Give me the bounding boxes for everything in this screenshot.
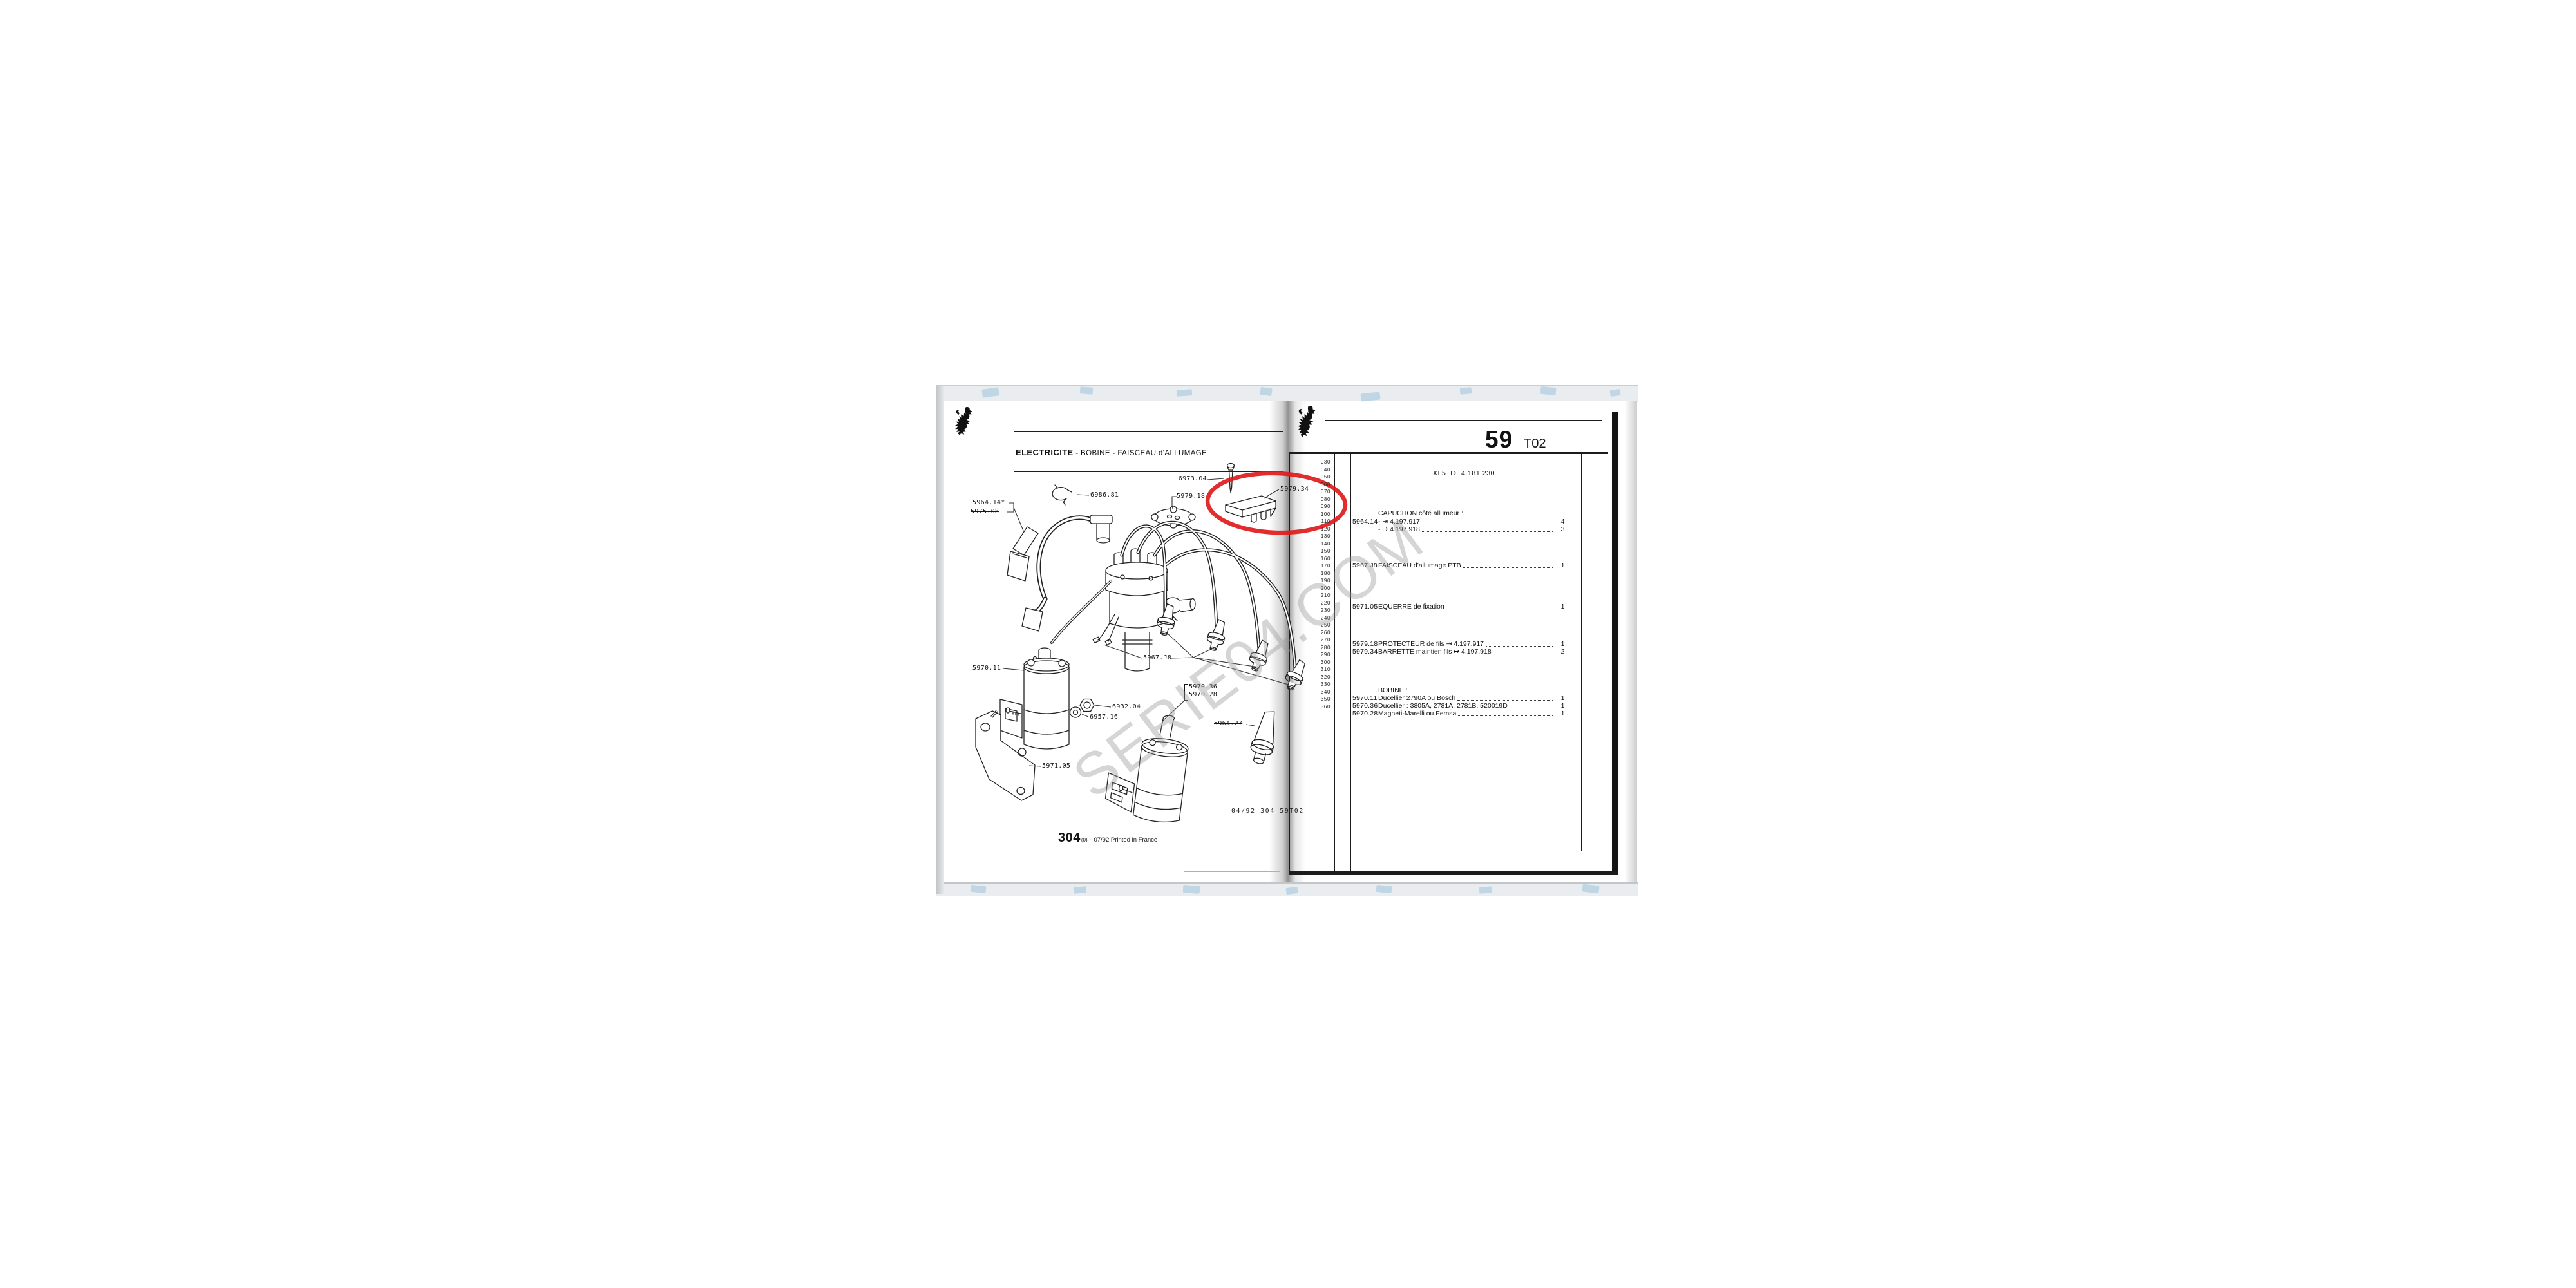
applicability-ref: 4.181.230	[1461, 469, 1495, 477]
dotted-leader	[1422, 531, 1553, 532]
margin-number: 060	[1314, 481, 1333, 489]
applicability-model: XL5	[1433, 469, 1446, 477]
part-label-5964-14: 5964.14*	[972, 499, 1005, 506]
dotted-leader	[1458, 715, 1553, 716]
margin-number: 360	[1314, 703, 1333, 711]
dotted-leader	[1422, 524, 1553, 524]
boot-5964-14-drawing	[1007, 527, 1038, 581]
margin-number: 140	[1314, 540, 1333, 548]
peugeot-lion-icon	[1298, 406, 1315, 437]
qty-value: 1	[1557, 694, 1569, 702]
margin-number: 110	[1314, 518, 1333, 526]
footer-print-note: - 07/92 Printed in France	[1090, 837, 1158, 844]
left-page-title: ELECTRICITE - BOBINE - FAISCEAU d'ALLUMA…	[1016, 448, 1207, 457]
margin-number: 080	[1314, 496, 1333, 504]
margin-number: 070	[1314, 488, 1333, 496]
part-label-5967-J8: 5967.J8	[1143, 654, 1171, 661]
margin-number: 300	[1314, 659, 1333, 667]
title-section: ELECTRICITE	[1016, 448, 1074, 457]
margin-number: 290	[1314, 651, 1333, 659]
screenshot-background: ELECTRICITE - BOBINE - FAISCEAU d'ALLUMA…	[0, 0, 2576, 1288]
margin-number: 130	[1314, 533, 1333, 540]
dotted-leader	[1446, 609, 1553, 609]
table-row: 5970.28Magneti-Marelli ou Femsa	[1352, 710, 1555, 717]
qty-value: 1	[1557, 603, 1569, 611]
page-code: T02	[1524, 437, 1546, 451]
qty-value: 3	[1557, 526, 1569, 533]
margin-number: 330	[1314, 681, 1333, 688]
margin-number: 040	[1314, 466, 1333, 474]
table-row: 5979.34BARRETTE maintien fils ↦ 4.197.91…	[1352, 648, 1555, 656]
qty-value: 1	[1557, 562, 1569, 569]
qty-value: 1	[1557, 702, 1569, 710]
footer-page-number: 304	[1058, 831, 1081, 846]
title-subsection: - BOBINE - FAISCEAU d'ALLUMAGE	[1074, 450, 1207, 457]
qty-value: 1	[1557, 710, 1569, 717]
margin-number: 090	[1314, 503, 1333, 511]
distributor-drawing	[1093, 549, 1195, 671]
part-label-5970-11: 5970.11	[972, 665, 1001, 672]
part-label-5979-18: 5979.18	[1177, 493, 1205, 500]
applicability-note: XL5 ↦ 4.181.230	[1433, 469, 1495, 477]
margin-number: 050	[1314, 473, 1333, 481]
table-row: 5979.18PROTECTEUR de fils ⇥ 4.197.917	[1352, 640, 1555, 648]
margin-number: 310	[1314, 666, 1333, 674]
part-label-6973-04: 6973.04	[1177, 475, 1207, 482]
peugeot-lion-icon	[955, 407, 972, 435]
dotted-leader	[1457, 700, 1553, 701]
table-section-header: BOBINE :	[1352, 687, 1580, 694]
dotted-leader	[1493, 654, 1553, 654]
coil-5970-11-drawing	[1000, 648, 1069, 749]
clip-6986-drawing	[1052, 485, 1072, 505]
table-row: 5970.11Ducellier 2790A ou Bosch	[1352, 694, 1555, 702]
qty-value: 1	[1557, 640, 1569, 648]
margin-number: 100	[1314, 511, 1333, 518]
barrette-5979-drawing	[1226, 496, 1276, 522]
table-row: 5970.36Ducellier : 3805A, 2781A, 2781B, …	[1352, 702, 1555, 710]
qty-value: 4	[1557, 518, 1569, 526]
margin-number: 120	[1314, 526, 1333, 533]
page-number: 59	[1485, 426, 1513, 453]
dotted-leader	[1463, 567, 1553, 568]
scanned-catalog-page: ELECTRICITE - BOBINE - FAISCEAU d'ALLUMA…	[925, 385, 1649, 895]
left-page-footer: 304 (0) - 07/92 Printed in France	[1058, 831, 1157, 846]
part-label-6986-81: 6986.81	[1090, 491, 1119, 498]
plate-reference-code: 04/92 304 59T02	[1231, 808, 1304, 815]
footer-edition: (0)	[1081, 837, 1088, 843]
arrow-from-bar-icon: ↦	[1451, 469, 1457, 477]
margin-number: 030	[1314, 459, 1333, 466]
boot-5964-27-drawing	[1247, 708, 1282, 766]
part-label-5979-34: 5979.34	[1280, 486, 1309, 493]
margin-number: 150	[1314, 547, 1333, 555]
margin-number: 340	[1314, 688, 1333, 696]
qty-value: 2	[1557, 648, 1569, 656]
dotted-leader	[1486, 646, 1553, 647]
margin-number: 350	[1314, 696, 1333, 703]
part-label-5975-08-struck: 5975.08	[971, 508, 999, 515]
table-row: 5971.05EQUERRE de fixation	[1352, 603, 1555, 611]
dotted-leader	[1510, 708, 1553, 708]
margin-number: 320	[1314, 674, 1333, 681]
